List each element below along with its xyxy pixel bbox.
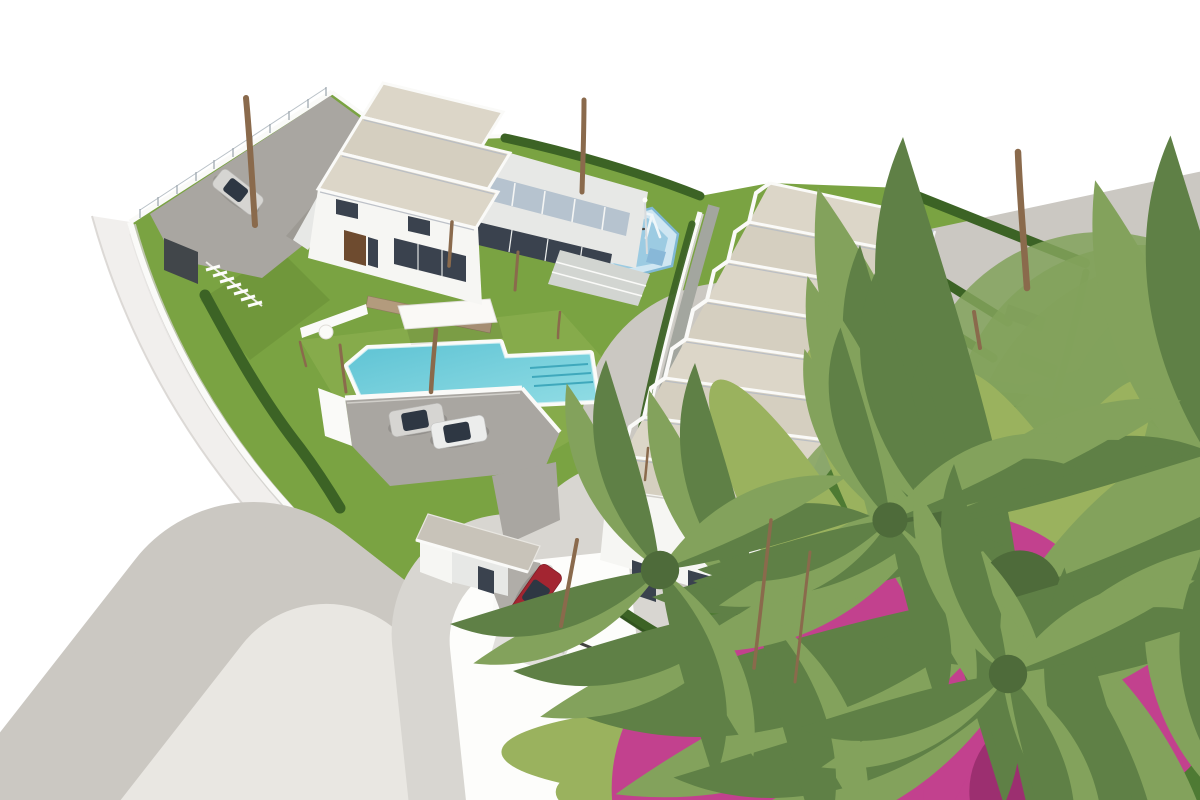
site-plan-render: [0, 0, 1200, 800]
render-canvas: [0, 0, 1200, 800]
door-sidelight: [368, 237, 378, 268]
entry-door: [344, 230, 366, 266]
parasol: [319, 325, 333, 339]
